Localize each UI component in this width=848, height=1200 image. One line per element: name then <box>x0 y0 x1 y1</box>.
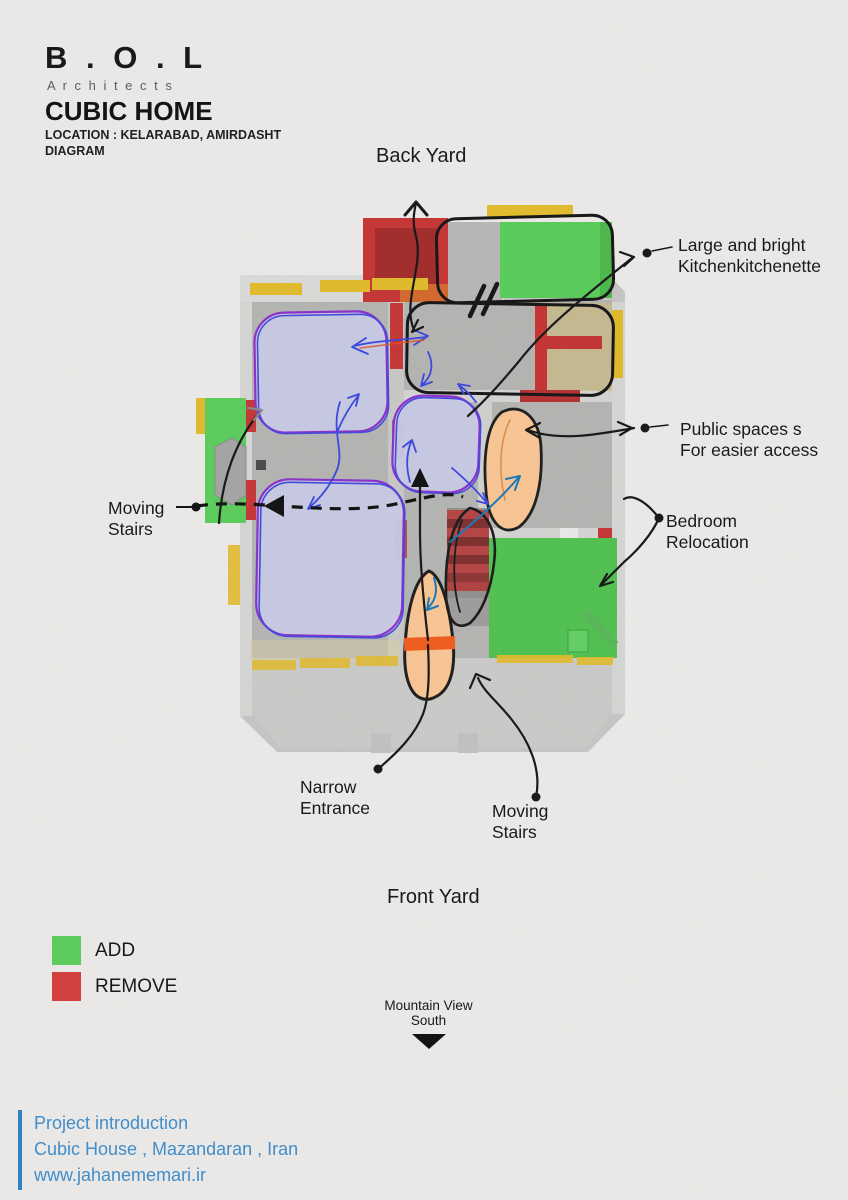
legend: ADD REMOVE <box>52 936 177 1008</box>
narrow-entrance-line2: Entrance <box>300 798 370 819</box>
legend-row-add: ADD <box>52 936 177 965</box>
public-spaces-line1: Public spaces s <box>680 419 818 440</box>
moving-stairs-bottom-annotation: Moving Stairs <box>492 801 548 844</box>
brand-subtitle: A r c h i t e c t s <box>47 78 174 93</box>
bedroom-add-area <box>489 538 617 658</box>
footer-line1: Project introduction <box>34 1110 298 1136</box>
moving-stairs-bottom-line2: Stairs <box>492 822 548 843</box>
kitchen-annotation: Large and bright Kitchenkitchenette <box>678 235 821 278</box>
moving-stairs-left-line2: Stairs <box>108 519 164 540</box>
remove-label: REMOVE <box>95 976 177 998</box>
south-arrow-icon <box>412 1034 446 1049</box>
footer-line2: Cubic House , Mazandaran , Iran <box>34 1136 298 1162</box>
poster: { "header": { "brand": "B . O . L", "bra… <box>0 0 848 1200</box>
footer-accent-bar <box>18 1110 22 1190</box>
bedroom-relocation-line1: Bedroom <box>666 511 749 532</box>
project-location: LOCATION : KELARABAD, AMIRDASHT <box>45 128 281 142</box>
moving-stairs-left-line1: Moving <box>108 498 164 519</box>
document-type: DIAGRAM <box>45 144 105 158</box>
remove-color-swatch <box>52 972 81 1001</box>
front-yard-label: Front Yard <box>387 886 480 909</box>
brand-logo: B . O . L <box>45 40 207 76</box>
back-yard-label: Back Yard <box>376 145 466 168</box>
public-spaces-line2: For easier access <box>680 440 818 461</box>
compass-line1: Mountain View <box>356 998 501 1013</box>
bedroom-relocation-line2: Relocation <box>666 532 749 553</box>
footer-website-link[interactable]: www.jahanememari.ir <box>34 1162 298 1188</box>
kitchen-annotation-line2: Kitchenkitchenette <box>678 256 821 277</box>
narrow-entrance-line1: Narrow <box>300 777 370 798</box>
legend-row-remove: REMOVE <box>52 972 177 1001</box>
add-color-swatch <box>52 936 81 965</box>
project-title: CUBIC HOME <box>45 96 213 127</box>
narrow-entrance-annotation: Narrow Entrance <box>300 777 370 820</box>
moving-stairs-left-annotation: Moving Stairs <box>108 498 164 541</box>
add-label: ADD <box>95 940 135 962</box>
compass: Mountain View South <box>356 998 501 1049</box>
footer: Project introduction Cubic House , Mazan… <box>18 1110 298 1190</box>
kitchen-annotation-line1: Large and bright <box>678 235 821 256</box>
compass-line2: South <box>356 1013 501 1028</box>
public-spaces-annotation: Public spaces s For easier access <box>680 419 818 462</box>
moving-stairs-bottom-line1: Moving <box>492 801 548 822</box>
bedroom-relocation-annotation: Bedroom Relocation <box>666 511 749 554</box>
